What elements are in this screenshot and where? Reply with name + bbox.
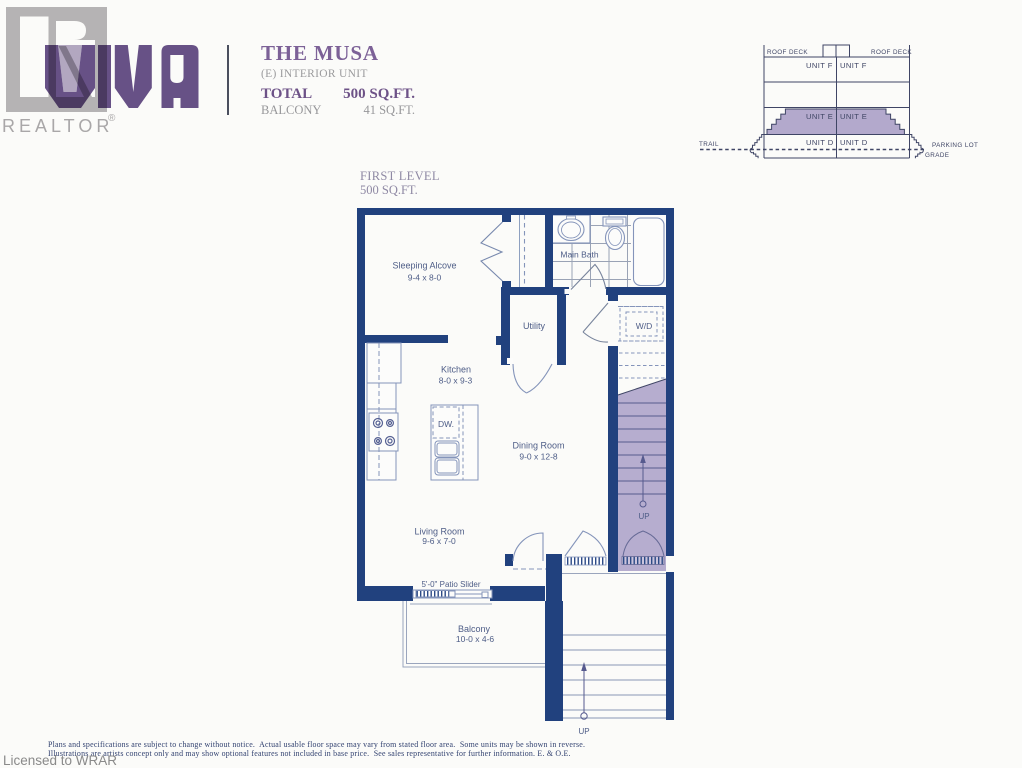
svg-text:UP: UP bbox=[638, 512, 649, 521]
svg-text:UP: UP bbox=[578, 727, 589, 736]
svg-text:5'-0" Patio Slider: 5'-0" Patio Slider bbox=[421, 580, 480, 589]
svg-text:DW.: DW. bbox=[438, 419, 454, 429]
svg-text:UNIT D: UNIT D bbox=[840, 138, 868, 147]
svg-text:Balcony: Balcony bbox=[458, 624, 491, 634]
svg-text:Dining Room: Dining Room bbox=[512, 441, 564, 451]
svg-text:®: ® bbox=[108, 113, 116, 124]
svg-text:UNIT F: UNIT F bbox=[840, 61, 867, 70]
svg-text:GRADE: GRADE bbox=[925, 152, 949, 159]
svg-text:UNIT D: UNIT D bbox=[806, 138, 834, 147]
svg-text:REALTOR: REALTOR bbox=[2, 116, 113, 136]
svg-text:TRAIL: TRAIL bbox=[699, 141, 719, 148]
svg-text:10-0 x 4-6: 10-0 x 4-6 bbox=[456, 634, 495, 644]
svg-text:Kitchen: Kitchen bbox=[441, 365, 471, 375]
svg-text:ROOF DECK: ROOF DECK bbox=[767, 49, 808, 56]
svg-text:8-0 x 9-3: 8-0 x 9-3 bbox=[439, 376, 473, 386]
svg-text:ROOF DECK: ROOF DECK bbox=[871, 49, 912, 56]
svg-text:Main Bath: Main Bath bbox=[560, 250, 599, 260]
svg-text:UNIT E: UNIT E bbox=[806, 112, 833, 121]
svg-text:9-6 x 7-0: 9-6 x 7-0 bbox=[422, 536, 456, 546]
svg-text:W/D: W/D bbox=[636, 321, 653, 331]
svg-text:9-4 x 8-0: 9-4 x 8-0 bbox=[408, 273, 442, 283]
svg-text:Living Room: Living Room bbox=[414, 527, 464, 537]
svg-text:Utility: Utility bbox=[523, 321, 545, 331]
svg-text:PARKING LOT: PARKING LOT bbox=[932, 142, 978, 149]
svg-text:UNIT E: UNIT E bbox=[840, 112, 867, 121]
svg-text:Sleeping Alcove: Sleeping Alcove bbox=[392, 261, 456, 271]
svg-text:9-0 x 12-8: 9-0 x 12-8 bbox=[519, 452, 558, 462]
svg-text:UNIT F: UNIT F bbox=[806, 61, 833, 70]
